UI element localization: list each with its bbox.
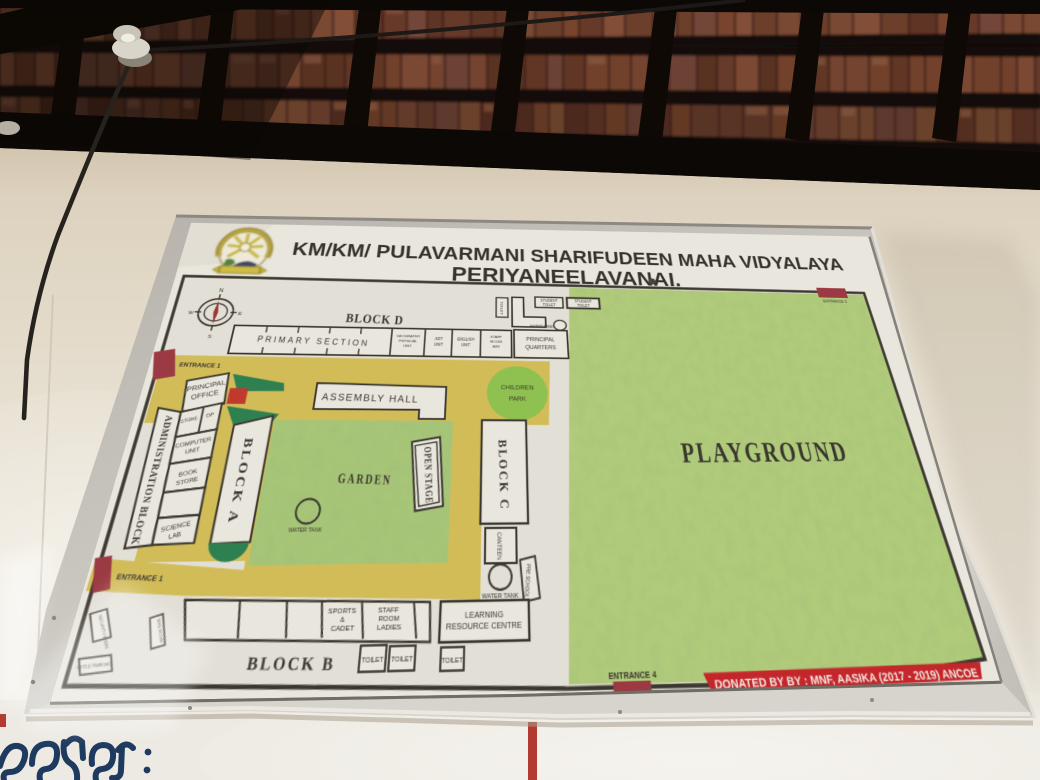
svg-text:TOILET: TOILET [577,304,591,308]
svg-text:PLAYGROUND: PLAYGROUND [679,437,852,470]
svg-text:ENTRANCE 1: ENTRANCE 1 [115,573,164,584]
svg-text:UNIT: UNIT [403,344,412,348]
svg-text:WATER TANK: WATER TANK [482,592,519,600]
svg-text:PHYSICAL: PHYSICAL [399,339,418,343]
svg-text:TOILET: TOILET [499,301,503,315]
svg-text:TOILET: TOILET [361,655,384,664]
svg-text:UNIT: UNIT [461,343,471,347]
svg-text:ENTRANCE 1: ENTRANCE 1 [178,362,221,370]
svg-text:WATER TANK: WATER TANK [288,526,323,533]
svg-text:CHILDREN: CHILDREN [501,385,534,392]
svg-text:BLOCK B: BLOCK B [245,655,336,675]
svg-text:ENTRANCE 4: ENTRANCE 4 [608,671,658,682]
svg-text:PRINCIPAL: PRINCIPAL [526,337,555,343]
svg-text:LADIES: LADIES [377,623,403,633]
svg-text:BLOCK D: BLOCK D [345,311,405,327]
svg-text:STUDENT: STUDENT [574,300,592,304]
svg-text:TOILET: TOILET [543,303,557,307]
svg-text:GEOGRAPHY: GEOGRAPHY [396,334,421,338]
svg-text:TOILET: TOILET [391,655,414,664]
svg-text:STAFF: STAFF [490,335,502,339]
svg-text:TOILET: TOILET [441,656,463,665]
svg-text:ENTRANCE 3: ENTRANCE 3 [822,299,848,304]
svg-text:STUDENT: STUDENT [540,299,558,303]
svg-text:GARDEN: GARDEN [337,471,393,488]
svg-text:BLOCK C: BLOCK C [495,439,511,511]
svg-text:ROOM: ROOM [490,340,502,344]
svg-text:ROOM: ROOM [378,614,400,624]
svg-text:A/M: A/M [493,345,500,349]
svg-text:CADET: CADET [330,624,355,634]
svg-text:ART: ART [435,337,444,341]
svg-text:UNIT: UNIT [434,343,444,347]
svg-text:WATER TANK: WATER TANK [530,325,555,329]
svg-text:SPORTS: SPORTS [328,607,358,617]
svg-text:STAFF: STAFF [377,606,399,616]
svg-text:QUARTERS: QUARTERS [525,345,556,352]
svg-text:ENGLISH: ENGLISH [457,338,475,342]
svg-text:RESOURCE CENTRE: RESOURCE CENTRE [446,622,522,633]
svg-text:LEARNING: LEARNING [465,611,503,621]
svg-text:PARK: PARK [509,396,526,403]
svg-text:OPEN STAGE: OPEN STAGE [422,446,435,504]
